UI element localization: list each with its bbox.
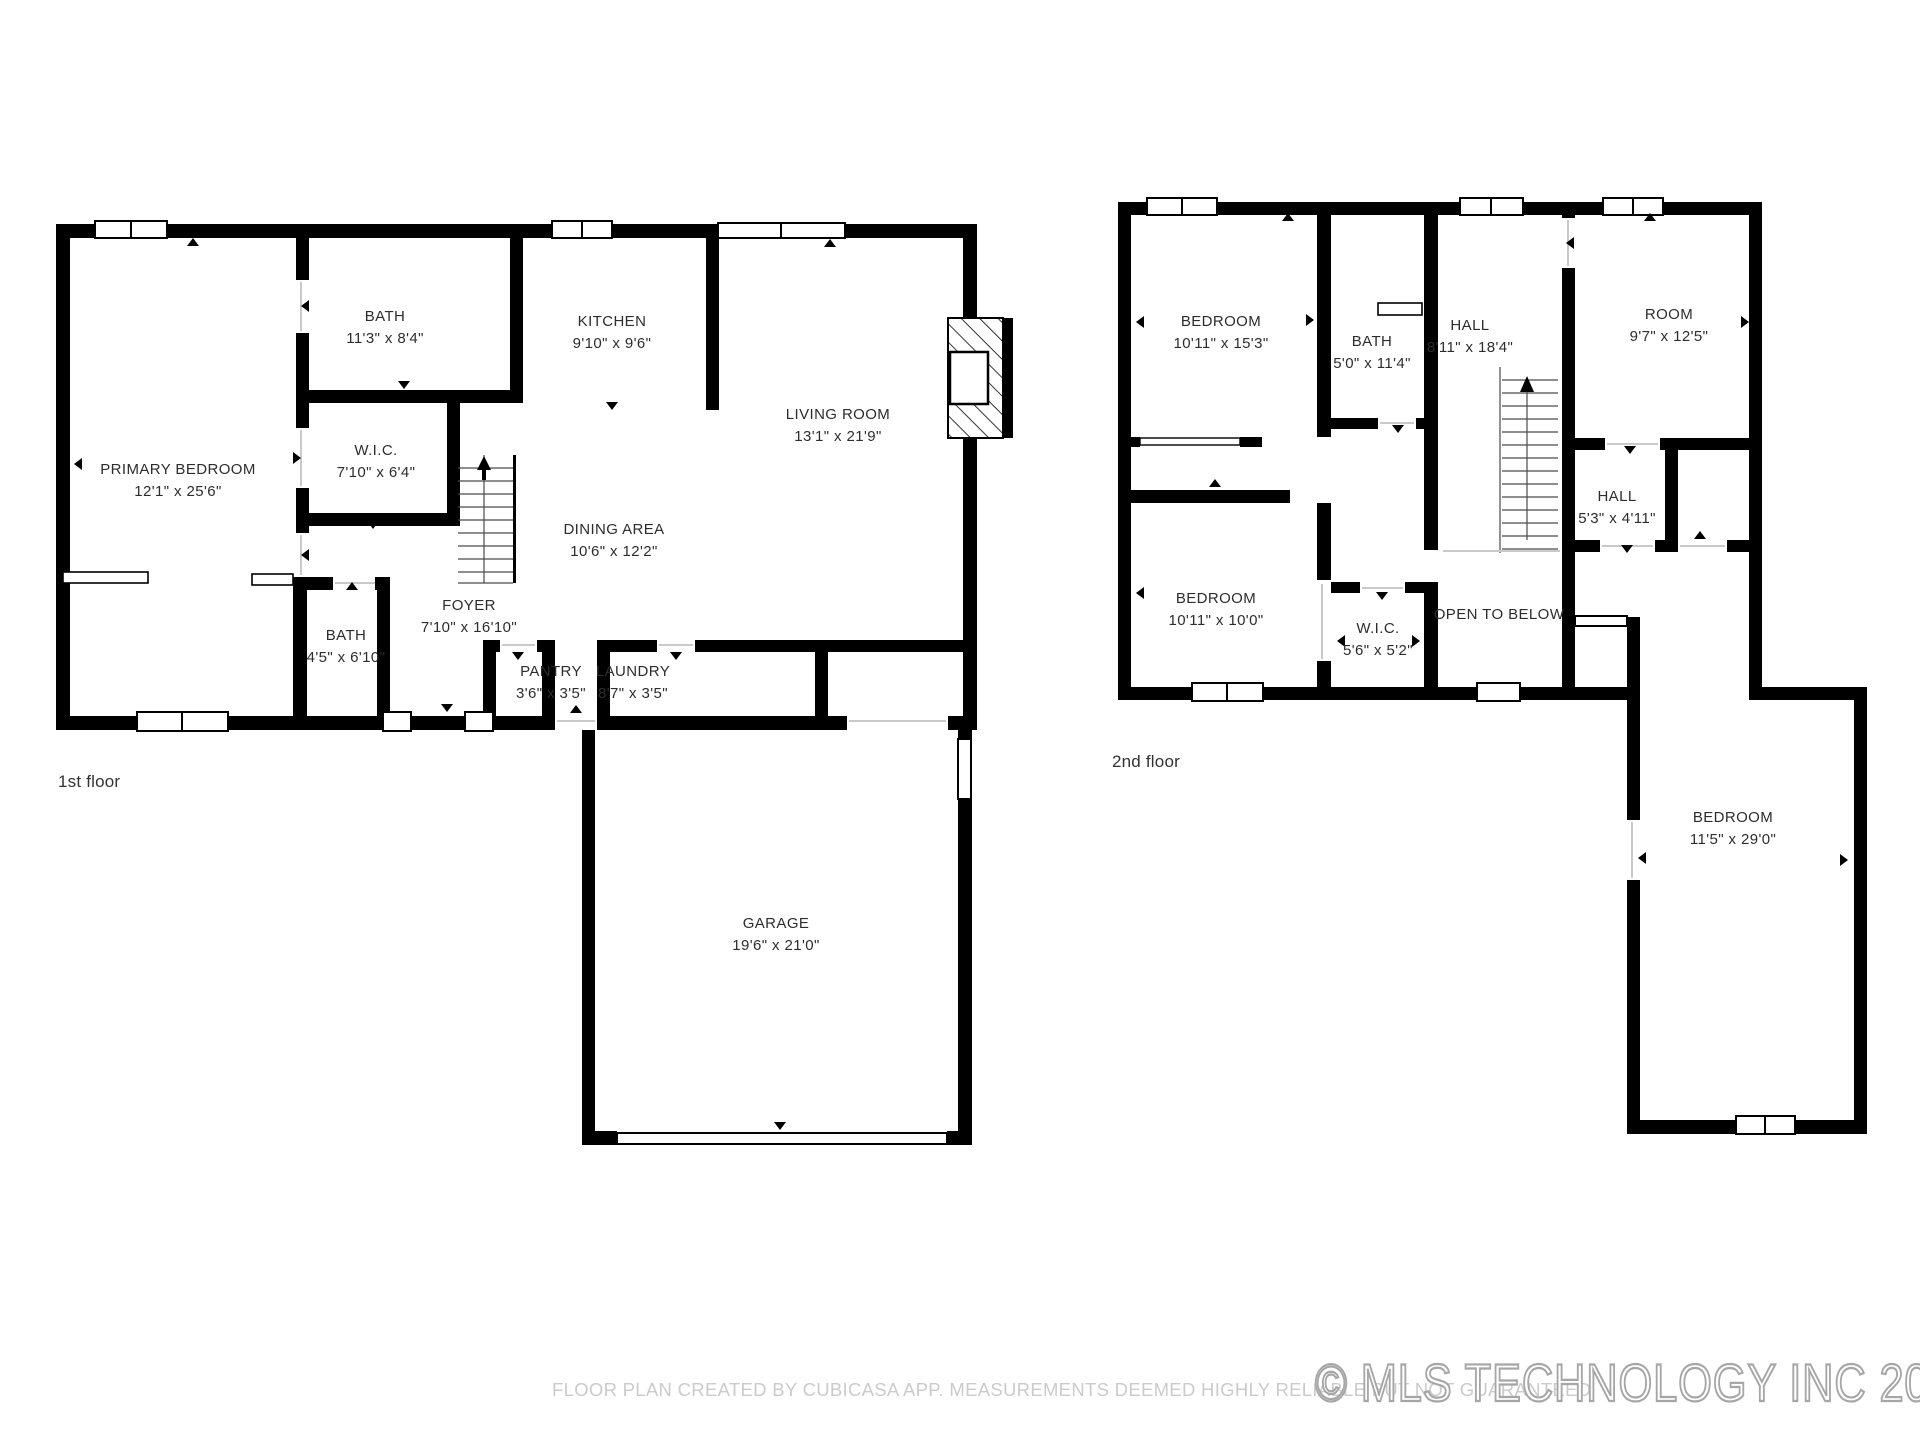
room-label-bath-2f: BATH 5'0" x 11'4" bbox=[1333, 331, 1411, 375]
floor-caption-2nd: 2nd floor bbox=[1112, 752, 1180, 772]
room-label-open-to-below: OPEN TO BELOW bbox=[1434, 604, 1565, 626]
room-label-dining-area: DINING AREA 10'6" x 12'2" bbox=[563, 519, 664, 563]
room-label-bedroom-2f-1: BEDROOM 10'11" x 15'3" bbox=[1173, 311, 1268, 355]
fireplace-icon bbox=[948, 318, 1003, 438]
room-label-pantry: PANTRY 3'6" x 3'5" bbox=[516, 661, 586, 705]
closet-shelf-icon bbox=[63, 572, 293, 585]
room-label-primary-bedroom: PRIMARY BEDROOM 12'1" x 25'6" bbox=[100, 459, 255, 503]
room-label-hall-2f: HALL 8'11" x 18'4" bbox=[1427, 315, 1513, 359]
room-label-bedroom-2f-3: BEDROOM 11'5" x 29'0" bbox=[1690, 807, 1776, 851]
room-label-kitchen: KITCHEN 9'10" x 9'6" bbox=[573, 311, 652, 355]
room-label-wic-1f: W.I.C. 7'10" x 6'4" bbox=[337, 440, 416, 484]
room-label-garage: GARAGE 19'6" x 21'0" bbox=[732, 913, 819, 957]
room-label-bath-1f-small: BATH 4'5" x 6'10" bbox=[307, 625, 386, 669]
floorplan-page: PRIMARY BEDROOM 12'1" x 25'6" BATH 11'3"… bbox=[0, 0, 1920, 1440]
floorplan-canvas bbox=[0, 0, 1920, 1440]
room-label-wic-2f: W.I.C. 5'6" x 5'2" bbox=[1343, 618, 1413, 662]
room-label-room-2f: ROOM 9'7" x 12'5" bbox=[1630, 304, 1709, 348]
room-label-living-room: LIVING ROOM 13'1" x 21'9" bbox=[786, 404, 890, 448]
room-label-laundry: LAUNDRY 8'7" x 3'5" bbox=[596, 661, 670, 705]
stairs-second-floor-icon bbox=[1500, 367, 1558, 553]
sink-counter-icon bbox=[1378, 303, 1422, 315]
room-label-bedroom-2f-2: BEDROOM 10'11" x 10'0" bbox=[1168, 588, 1263, 632]
floor-caption-1st: 1st floor bbox=[58, 772, 120, 792]
room-label-foyer: FOYER 7'10" x 16'10" bbox=[421, 595, 517, 639]
stairs-first-floor-icon bbox=[458, 455, 513, 583]
room-label-bath-1f: BATH 11'3" x 8'4" bbox=[346, 306, 424, 350]
closet-door-icon bbox=[1140, 438, 1240, 445]
room-label-hall-2f-small: HALL 5'3" x 4'11" bbox=[1578, 486, 1656, 530]
door-arrow-icon bbox=[74, 238, 836, 1130]
watermark-text: © MLS TECHNOLOGY INC 2025 bbox=[1315, 1353, 1920, 1414]
